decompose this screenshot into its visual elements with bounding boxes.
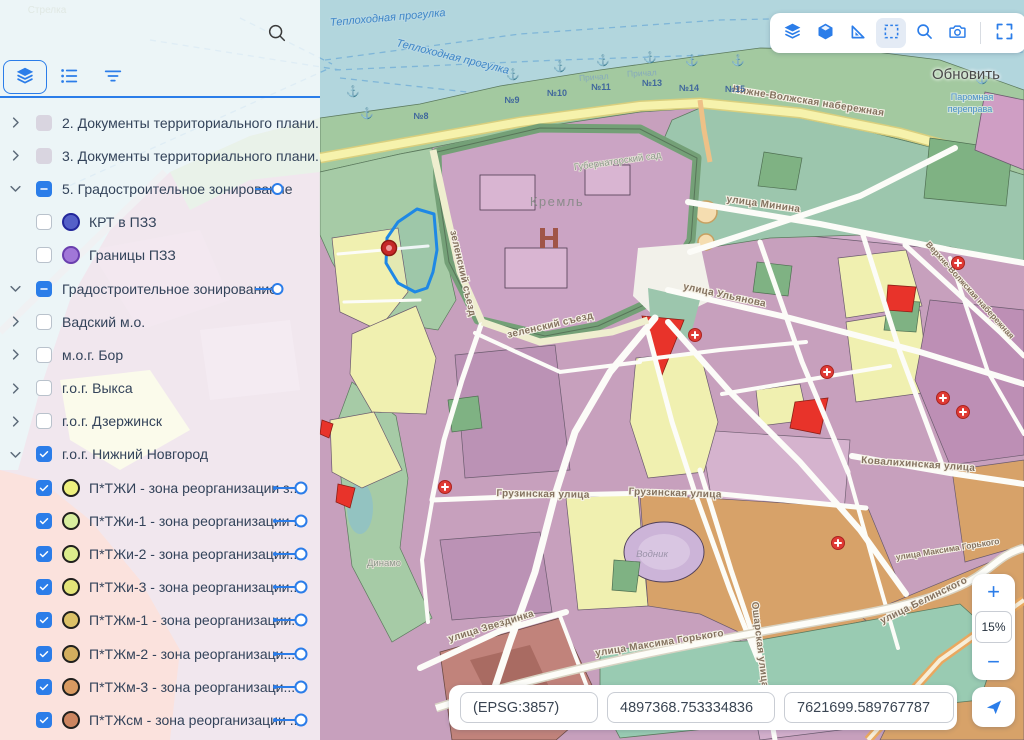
chevron-spacer: [8, 611, 36, 629]
layer-label: Вадский м.о.: [62, 314, 145, 330]
layer-checkbox[interactable]: [36, 712, 52, 728]
select-area-icon: [881, 21, 902, 45]
filter-icon: [102, 65, 124, 90]
zoom-in-button[interactable]: +: [981, 580, 1006, 604]
layer-row: Границы ПЗЗ: [0, 239, 320, 272]
layer-label: г.о.г. Нижний Новгород: [62, 446, 208, 462]
layer-checkbox[interactable]: [36, 148, 52, 164]
sidebar-tab-filter[interactable]: [91, 60, 135, 94]
select-area-tool-button[interactable]: [876, 18, 906, 48]
layer-color-swatch: [62, 678, 80, 696]
layer-checkbox[interactable]: [36, 513, 52, 529]
ruler-icon: [848, 21, 869, 45]
chevron-right-icon[interactable]: [8, 346, 36, 364]
layer-checkbox[interactable]: [36, 214, 52, 230]
layers-icon: [14, 65, 36, 90]
anchor-icon: ⚓: [596, 54, 610, 67]
chevron-spacer: [8, 479, 36, 497]
chevron-down-icon[interactable]: [8, 180, 36, 198]
chevron-spacer: [8, 645, 36, 663]
zoom-panel: + 15% −: [972, 574, 1015, 680]
layer-label: 3. Документы территориального плани...: [62, 148, 320, 164]
layer-row: П*ТЖи-2 - зона реорганизации...: [0, 537, 320, 570]
navigation-arrow-icon: [984, 697, 1004, 717]
layer-row: Вадский м.о.: [0, 305, 320, 338]
layers-icon: [782, 21, 803, 45]
layer-checkbox[interactable]: [36, 612, 52, 628]
layer-color-swatch: [62, 645, 80, 663]
map-label: Грузинская улица: [496, 488, 589, 501]
layer-color-swatch: [62, 512, 80, 530]
layer-checkbox[interactable]: [36, 380, 52, 396]
map-label: Водник: [636, 549, 668, 560]
layer-row: г.о.г. Дзержинск: [0, 405, 320, 438]
chevron-down-icon[interactable]: [8, 445, 36, 463]
berth-label: №10: [547, 88, 567, 98]
layer-label: м.о.г. Бор: [62, 347, 123, 363]
layer-row: П*ТЖи-3 - зона реорганизации...: [0, 571, 320, 604]
berth-label: №8: [413, 111, 428, 121]
layer-opacity-slider[interactable]: [272, 580, 308, 594]
layer-label: Границы ПЗЗ: [89, 247, 176, 263]
layer-row: П*ТЖм-3 - зона реорганизаци...: [0, 670, 320, 703]
map-toolbar: [770, 13, 1024, 53]
search-icon: [266, 22, 288, 44]
cube-tool-button[interactable]: [810, 18, 840, 48]
chevron-right-icon[interactable]: [8, 412, 36, 430]
chevron-right-icon[interactable]: [8, 114, 36, 132]
anchor-icon: ⚓: [346, 85, 360, 98]
layer-label: П*ТЖи-3 - зона реорганизации...: [89, 579, 301, 595]
layer-opacity-slider[interactable]: [272, 613, 308, 627]
map-label: Кремль: [530, 194, 584, 209]
coordinate-y-field[interactable]: [784, 692, 954, 723]
chevron-spacer: [8, 711, 36, 729]
layer-checkbox[interactable]: [36, 646, 52, 662]
layer-row: г.о.г. Выкса: [0, 372, 320, 405]
chevron-right-icon[interactable]: [8, 147, 36, 165]
layer-checkbox[interactable]: [36, 679, 52, 695]
layer-opacity-slider[interactable]: [272, 481, 308, 495]
layer-color-swatch: [62, 578, 80, 596]
anchor-icon: ⚓: [731, 54, 745, 67]
chevron-right-icon[interactable]: [8, 313, 36, 331]
layer-opacity-slider[interactable]: [272, 547, 308, 561]
layer-color-swatch: [62, 246, 80, 264]
anchor-icon: ⚓: [685, 54, 699, 67]
selection-point-marker[interactable]: [382, 241, 397, 256]
search-icon: [914, 21, 935, 45]
chevron-spacer: [8, 512, 36, 530]
layer-opacity-slider[interactable]: [272, 647, 308, 661]
ruler-tool-button[interactable]: [843, 18, 873, 48]
layer-row: П*ТЖм-1 - зона реорганизации...: [0, 604, 320, 637]
zoom-level: 15%: [975, 611, 1011, 643]
chevron-spacer: [8, 678, 36, 696]
layer-checkbox[interactable]: [36, 115, 52, 131]
layer-label: П*ТЖм-1 - зона реорганизации...: [89, 612, 303, 628]
layer-tree: 2. Документы территориального плани...3.…: [0, 106, 320, 737]
layers-tool-button[interactable]: [777, 18, 807, 48]
layer-label: П*ТЖИ - зона реорганизации з...: [89, 480, 301, 496]
cube-icon: [815, 21, 836, 45]
layer-row: 2. Документы территориального плани...: [0, 106, 320, 139]
layer-opacity-toggle[interactable]: [254, 282, 284, 296]
medical-cross-marker: [937, 392, 950, 405]
berth-label: №14: [679, 83, 699, 93]
layer-color-swatch: [62, 711, 80, 729]
sidebar-search-button[interactable]: [266, 22, 288, 44]
coordinate-x-field[interactable]: [607, 692, 775, 723]
layer-label: КРТ в ПЗЗ: [89, 214, 157, 230]
medical-cross-marker: [832, 537, 845, 550]
chevron-spacer: [8, 578, 36, 596]
layer-checkbox[interactable]: [36, 579, 52, 595]
layer-checkbox[interactable]: [36, 446, 52, 462]
medical-cross-marker: [952, 257, 965, 270]
sidebar-tab-list[interactable]: [47, 60, 91, 94]
map-label: Паромная: [951, 92, 994, 102]
layer-checkbox[interactable]: [36, 247, 52, 263]
layer-row: Градостроительное зонирование: [0, 272, 320, 305]
medical-cross-marker: [821, 366, 834, 379]
layer-opacity-toggle[interactable]: [254, 182, 284, 196]
layer-checkbox[interactable]: [36, 413, 52, 429]
layer-color-swatch: [62, 611, 80, 629]
chevron-spacer: [8, 545, 36, 563]
list-icon: [58, 65, 80, 90]
layer-label: П*ТЖи-2 - зона реорганизации...: [89, 546, 301, 562]
berth-label: №15: [725, 84, 745, 94]
layer-row: 5. Градостроительное зонирование: [0, 172, 320, 205]
medical-cross-marker: [689, 329, 702, 342]
sidebar-tab-layers[interactable]: [3, 60, 47, 94]
chevron-spacer: [8, 246, 36, 264]
medical-cross-marker: [957, 406, 970, 419]
layer-label: П*ТЖм-2 - зона реорганизаци...: [89, 646, 295, 662]
layer-checkbox[interactable]: [36, 314, 52, 330]
search-tool-button[interactable]: [909, 18, 939, 48]
layer-label: 2. Документы территориального плани...: [62, 115, 320, 131]
layer-row: г.о.г. Нижний Новгород: [0, 438, 320, 471]
anchor-icon: ⚓: [643, 51, 657, 64]
chevron-spacer: [8, 213, 36, 231]
layer-label: П*ТЖсм - зона реорганизации ...: [89, 712, 301, 728]
layer-row: П*ТЖм-2 - зона реорганизаци...: [0, 637, 320, 670]
layer-color-swatch: [62, 545, 80, 563]
chevron-down-icon[interactable]: [8, 280, 36, 298]
layer-label: Градостроительное зонирование: [62, 281, 277, 297]
layer-color-swatch: [62, 213, 80, 231]
layer-checkbox[interactable]: [36, 546, 52, 562]
app-window: ⚓⚓⚓⚓⚓⚓⚓⚓⚓ Теплоходная прогулкаТеплоходна…: [0, 0, 1024, 740]
layer-label: г.о.г. Дзержинск: [62, 413, 162, 429]
layer-label: П*ТЖм-3 - зона реорганизаци...: [89, 679, 295, 695]
coordinates-bar: [449, 685, 957, 730]
layer-checkbox[interactable]: [36, 480, 52, 496]
fullscreen-icon: [994, 21, 1015, 45]
locate-button[interactable]: [972, 687, 1015, 727]
layer-row: П*ТЖи-1 - зона реорганизации ...: [0, 504, 320, 537]
layer-checkbox[interactable]: [36, 281, 52, 297]
layer-row: П*ТЖИ - зона реорганизации з...: [0, 471, 320, 504]
camera-tool-button[interactable]: [942, 18, 972, 48]
layer-color-swatch: [62, 479, 80, 497]
map-label: Динамо: [367, 558, 401, 569]
chevron-right-icon[interactable]: [8, 379, 36, 397]
layer-opacity-slider[interactable]: [272, 713, 308, 727]
anchor-icon: ⚓: [360, 107, 374, 120]
layer-row: П*ТЖсм - зона реорганизации ...: [0, 703, 320, 736]
layer-opacity-slider[interactable]: [272, 514, 308, 528]
sidebar-tab-bar: [0, 58, 320, 98]
layer-opacity-slider[interactable]: [272, 680, 308, 694]
layer-checkbox[interactable]: [36, 181, 52, 197]
layer-row: 3. Документы территориального плани...: [0, 139, 320, 172]
camera-icon: [947, 21, 968, 45]
layer-row: м.о.г. Бор: [0, 338, 320, 371]
map-label: переправа: [948, 104, 992, 114]
berth-label: №9: [504, 95, 519, 105]
berth-label: №11: [591, 82, 611, 92]
anchor-icon: ⚓: [553, 60, 567, 73]
zoom-out-button[interactable]: −: [981, 650, 1006, 674]
crs-field[interactable]: [460, 692, 598, 723]
layer-checkbox[interactable]: [36, 347, 52, 363]
medical-cross-marker: [439, 481, 452, 494]
layer-label: г.о.г. Выкса: [62, 380, 133, 396]
layer-row: КРТ в ПЗЗ: [0, 206, 320, 239]
layers-sidebar: 2. Документы территориального плани...3.…: [0, 0, 320, 740]
toolbar-divider: [980, 22, 981, 44]
refresh-button[interactable]: Обновить: [932, 66, 1000, 83]
berth-label: №13: [642, 78, 662, 88]
fullscreen-tool-button[interactable]: [989, 18, 1019, 48]
